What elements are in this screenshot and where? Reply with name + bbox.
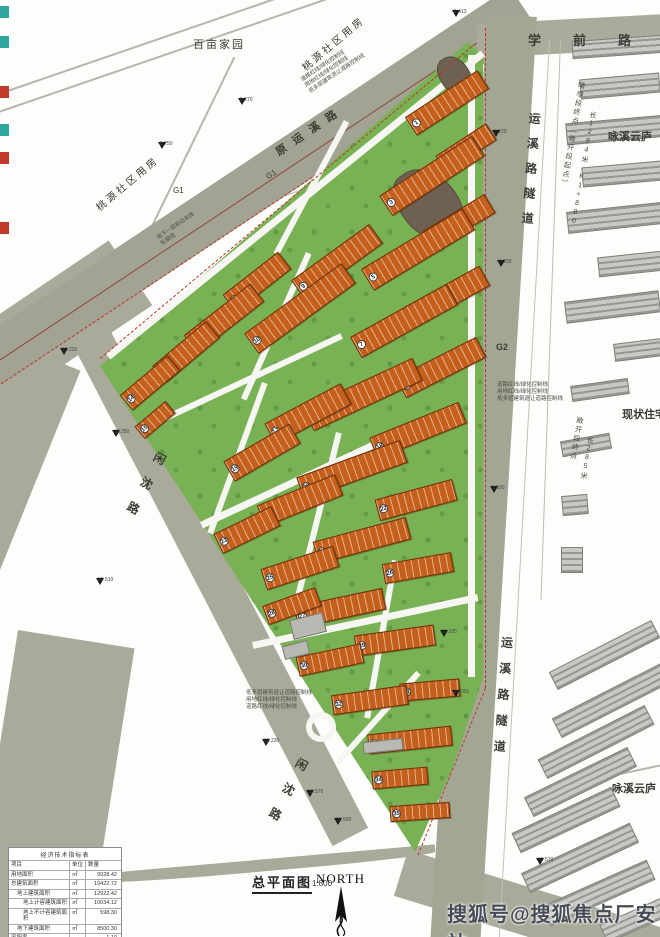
building-number-badge: 19 <box>229 462 241 474</box>
elevation-value: 5.250 <box>160 141 173 147</box>
elevation-marker-icon: 5.220 <box>497 260 505 267</box>
elevation-value: 5.320 <box>492 485 505 491</box>
table-cell: ㎡ <box>69 899 85 908</box>
indicator-table-row: 总建筑面积㎡19422.72 <box>9 879 121 889</box>
elevation-marker-icon: 12.510 <box>96 578 104 585</box>
table-cell: 9928.42 <box>85 871 119 880</box>
note-line: 道路红线/绿化控制线 <box>497 382 563 389</box>
header-cell: 项目 <box>9 861 69 870</box>
elevation-value: 13.570 <box>308 789 323 795</box>
edge-chip <box>0 86 9 98</box>
table-cell: ㎡ <box>69 890 85 899</box>
indicator-table-row: 地上不计容建筑面积㎡598.30 <box>9 908 121 924</box>
building-number-badge: 23 <box>218 535 230 547</box>
edge-chip <box>0 6 9 18</box>
elevation-value: 11.105 <box>442 629 457 635</box>
label-yongxi-yunlu-2: 咏溪云庐 <box>612 780 656 796</box>
elevation-value: 13.220 <box>62 347 77 353</box>
existing-building <box>613 338 660 362</box>
elevation-marker-icon: 13.500 <box>334 818 342 825</box>
elevation-marker-icon: 13.220 <box>262 739 270 746</box>
indicator-table-row: 用地面积㎡9928.42 <box>9 870 121 880</box>
existing-building <box>561 547 583 573</box>
site-plan-canvas: 1234567891011121314151617181920212223242… <box>0 0 660 937</box>
indicator-table-title: 经济技术指标表 <box>9 848 121 860</box>
header-cell: 单位 <box>69 861 85 870</box>
table-cell: ㎡ <box>69 880 85 889</box>
table-cell: 12922.42 <box>85 890 119 899</box>
elevation-value: 13.519 <box>538 857 553 863</box>
table-cell: 19422.72 <box>85 880 119 889</box>
table-cell: 地上建筑面积 <box>9 890 69 899</box>
table-cell: ㎡ <box>69 871 85 880</box>
watermark-text: 搜狐号@搜狐焦点厂安站 <box>447 898 660 937</box>
table-cell: ㎡ <box>69 909 85 924</box>
building-number-badge: 25 <box>264 572 275 583</box>
table-cell: 总建筑面积 <box>9 880 69 889</box>
elevation-marker-icon: 1.413 <box>452 10 460 17</box>
elevation-value: 5.220 <box>494 129 507 135</box>
edge-chip <box>0 152 9 164</box>
building-number-badge: 22 <box>378 503 389 514</box>
indicator-table-rows: 项目单位数量用地面积㎡9928.42总建筑面积㎡19422.72地上建筑面积㎡1… <box>9 860 121 937</box>
note-line: 低多层建筑退让道路控制线 <box>497 396 563 403</box>
building-number-badge: 5 <box>367 270 379 282</box>
indicator-table: 经济技术指标表 项目单位数量用地面积㎡9928.42总建筑面积㎡19422.72… <box>8 847 122 937</box>
indicator-table-row: 容积率1.10 <box>9 933 121 937</box>
elevation-marker-icon: 5.270 <box>238 98 246 105</box>
elevation-value: 13.250 <box>114 429 129 435</box>
label-g2: G2 <box>496 342 508 352</box>
building-number-badge: 3 <box>385 196 397 208</box>
elevation-value: 1.413 <box>454 9 467 15</box>
table-cell: 10034.12 <box>85 899 119 908</box>
existing-building <box>570 378 630 402</box>
table-cell: ㎡ <box>69 925 85 934</box>
redline-note-southwest: 低多层建筑退让道路控制线 用地红线/绿化控制线 道路红线/绿化控制线 <box>246 690 312 711</box>
building-number-badge: 28 <box>266 608 278 620</box>
elevation-value: 13.220 <box>264 738 279 744</box>
elevation-marker-icon: 13.250 <box>112 430 120 437</box>
building-number-badge: 14 <box>125 392 138 405</box>
building-number-badge: 7 <box>355 338 367 350</box>
label-existing-housing: 现状住宅 <box>622 406 660 422</box>
note-line: 用地红线/绿化控制线 <box>497 389 563 396</box>
north-arrow-icon <box>326 886 356 937</box>
table-cell: 用地面积 <box>9 871 69 880</box>
existing-building <box>597 251 660 278</box>
building-number-badge: 10 <box>250 333 263 346</box>
table-cell: 地下建筑面积 <box>9 925 69 934</box>
label-g1-a: G1 <box>173 186 184 195</box>
building-number-badge: 32 <box>334 699 344 709</box>
indicator-table-row: 地上计容建筑面积㎡10034.12 <box>9 898 121 908</box>
label-yongxi-yunlu-1: 咏溪云庐 <box>608 128 652 144</box>
elevation-marker-icon: 5.220 <box>492 130 500 137</box>
header-cell: 数量 <box>85 861 119 870</box>
label-baimu-jiayuan: 百亩家园 <box>193 36 245 52</box>
building-number-badge: 1 <box>410 117 422 129</box>
existing-building <box>564 290 660 323</box>
elevation-value: 13.500 <box>336 817 351 823</box>
edge-chip <box>0 36 9 48</box>
existing-building <box>579 73 660 100</box>
label-xianshen-road-2: 闲沈路 <box>241 755 312 869</box>
table-cell: 598.30 <box>85 909 119 924</box>
elevation-value: 5.220 <box>499 259 512 265</box>
elevation-marker-icon: 13.570 <box>306 790 314 797</box>
elevation-value: 5.270 <box>240 97 253 103</box>
building-number-badge: 35 <box>392 809 402 819</box>
note-line: 道路红线/绿化控制线 <box>246 704 312 711</box>
elevation-marker-icon: 11.105 <box>440 630 448 637</box>
edge-chip <box>0 222 9 234</box>
note-line: 低多层建筑退让道路控制线 <box>246 690 312 697</box>
site-roundabout <box>306 712 336 742</box>
label-taoyuan-community-1: 桃源社区用房 <box>92 152 161 214</box>
elevation-marker-icon: 5.250 <box>158 142 166 149</box>
elevation-value: 16.001 <box>454 689 469 695</box>
table-cell: 地上计容建筑面积 <box>9 899 69 908</box>
plan-title: 总平面图 <box>252 872 312 894</box>
elevation-marker-icon: 13.220 <box>60 348 68 355</box>
building-number-badge: 15 <box>138 422 151 435</box>
indicator-table-header: 项目单位数量 <box>9 860 121 870</box>
building-number-badge: 26 <box>385 568 395 578</box>
table-cell: 8500.30 <box>85 925 119 934</box>
indicator-table-row: 地上建筑面积㎡12922.42 <box>9 889 121 899</box>
table-cell: 地上不计容建筑面积 <box>9 909 69 924</box>
elevation-marker-icon: 5.320 <box>490 486 498 493</box>
redline-note-east: 道路红线/绿化控制线 用地红线/绿化控制线 低多层建筑退让道路控制线 <box>497 382 563 403</box>
elevation-value: 12.510 <box>98 577 113 583</box>
building-number-badge: 34 <box>374 775 384 785</box>
north-label: NORTH <box>316 871 365 887</box>
existing-building <box>581 161 660 188</box>
elevation-marker-icon: 16.001 <box>452 690 460 697</box>
indicator-table-row: 地下建筑面积㎡8500.30 <box>9 924 121 934</box>
note-line: 用地红线/绿化控制线 <box>246 697 312 704</box>
label-xueqian-road: 学前路 <box>528 30 660 49</box>
building-number-badge: 30 <box>299 660 310 671</box>
edge-chip <box>0 124 9 136</box>
elevation-marker-icon: 13.519 <box>536 858 544 865</box>
